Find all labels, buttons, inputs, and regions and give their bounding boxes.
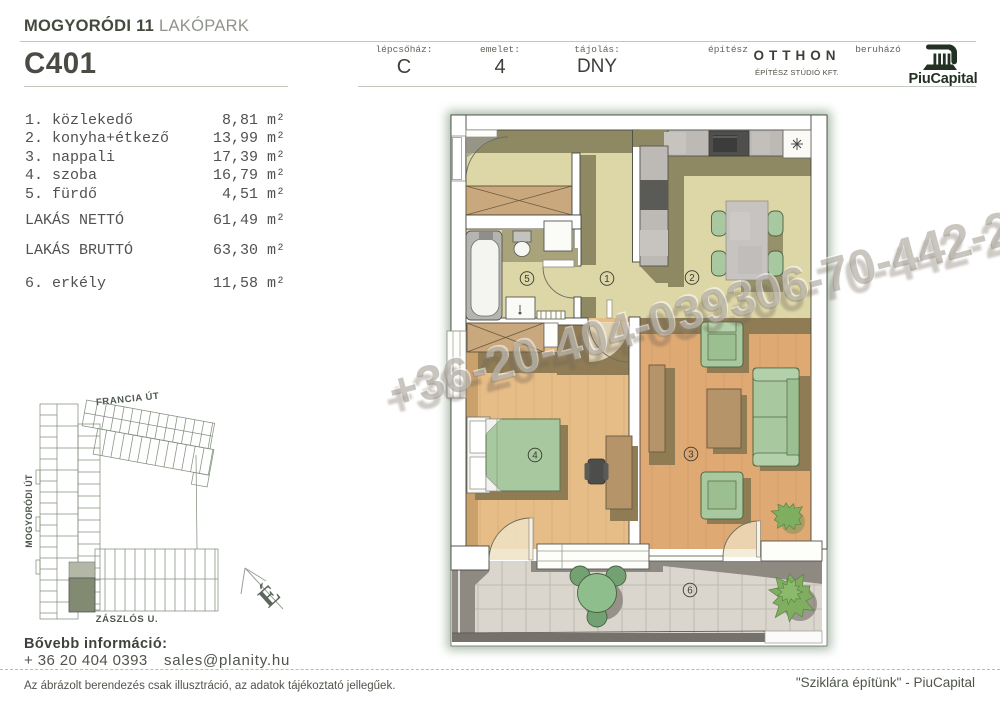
svg-text:3: 3: [688, 449, 694, 460]
svg-text:PiuCapital: PiuCapital: [909, 71, 978, 87]
svg-text:É: É: [252, 579, 285, 613]
svg-text:5: 5: [524, 274, 530, 285]
svg-text:FRANCIA ÚT: FRANCIA ÚT: [95, 390, 160, 409]
svg-text:1: 1: [604, 274, 609, 285]
svg-text:6: 6: [687, 585, 693, 596]
svg-text:4: 4: [532, 450, 538, 461]
svg-text:ZÁSZLÓS U.: ZÁSZLÓS U.: [96, 613, 158, 625]
svg-text:MOGYORÓDI ÚT: MOGYORÓDI ÚT: [23, 474, 34, 548]
